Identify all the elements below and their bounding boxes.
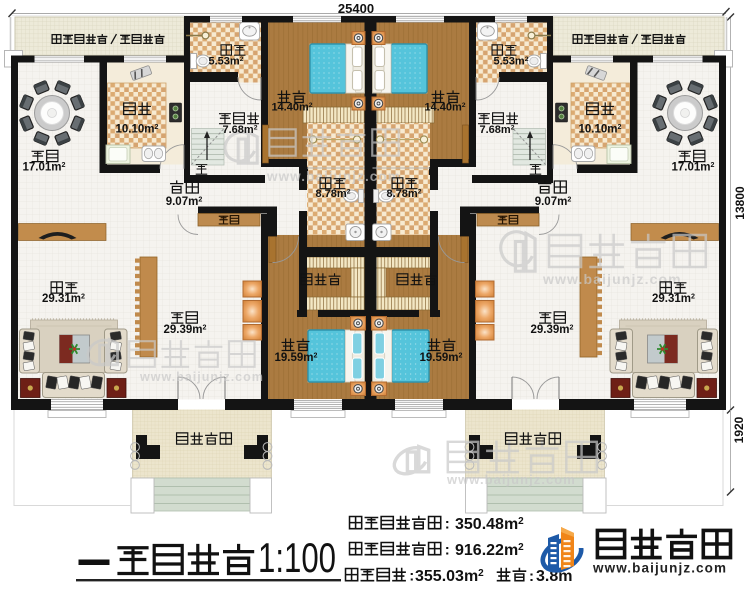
svg-text:29.31m2: 29.31m2 xyxy=(652,293,695,306)
svg-text::: : xyxy=(409,568,414,585)
svg-text:916.22m2: 916.22m2 xyxy=(455,542,524,559)
svg-text:350.48m2: 350.48m2 xyxy=(455,516,524,533)
svg-text:8.78m2: 8.78m2 xyxy=(316,188,351,200)
svg-text:9.07m2: 9.07m2 xyxy=(535,196,572,209)
svg-text:5.53m2: 5.53m2 xyxy=(209,56,244,68)
svg-text:19.59m2: 19.59m2 xyxy=(420,352,463,365)
svg-text:25400: 25400 xyxy=(338,1,374,16)
svg-text:14.40m2: 14.40m2 xyxy=(424,102,465,114)
svg-text:10.10m2: 10.10m2 xyxy=(116,123,159,136)
svg-text:19.59m2: 19.59m2 xyxy=(275,352,318,365)
svg-text:9.07m2: 9.07m2 xyxy=(166,196,203,209)
svg-text:8.78m2: 8.78m2 xyxy=(387,188,422,200)
svg-text:17.01m2: 17.01m2 xyxy=(672,161,715,174)
svg-text:29.39m2: 29.39m2 xyxy=(164,324,207,337)
svg-text:10.10m2: 10.10m2 xyxy=(579,123,622,136)
svg-text:www.baijunjz.com: www.baijunjz.com xyxy=(139,370,264,384)
svg-text:7.68m2: 7.68m2 xyxy=(223,124,258,136)
svg-text::: : xyxy=(445,516,450,533)
svg-text:www.baijunjz.com: www.baijunjz.com xyxy=(266,169,401,184)
svg-text:17.01m2: 17.01m2 xyxy=(23,161,66,174)
svg-text::: : xyxy=(529,568,534,585)
svg-text:1920: 1920 xyxy=(732,416,746,443)
svg-text:www.baijunjz.com: www.baijunjz.com xyxy=(592,561,727,576)
svg-text:29.31m2: 29.31m2 xyxy=(42,293,85,306)
svg-text:www.baijunjz.com: www.baijunjz.com xyxy=(542,271,682,287)
svg-text:29.39m2: 29.39m2 xyxy=(531,324,574,337)
svg-text:355.03m2: 355.03m2 xyxy=(415,568,484,585)
svg-text:7.68m2: 7.68m2 xyxy=(480,124,515,136)
svg-text::: : xyxy=(445,542,450,559)
svg-text:13800: 13800 xyxy=(733,186,747,220)
svg-text:14.40m2: 14.40m2 xyxy=(271,102,312,114)
svg-text:www.baijunjz.com: www.baijunjz.com xyxy=(446,472,576,487)
svg-text:1:100: 1:100 xyxy=(258,534,336,581)
svg-text:5.53m2: 5.53m2 xyxy=(494,56,529,68)
